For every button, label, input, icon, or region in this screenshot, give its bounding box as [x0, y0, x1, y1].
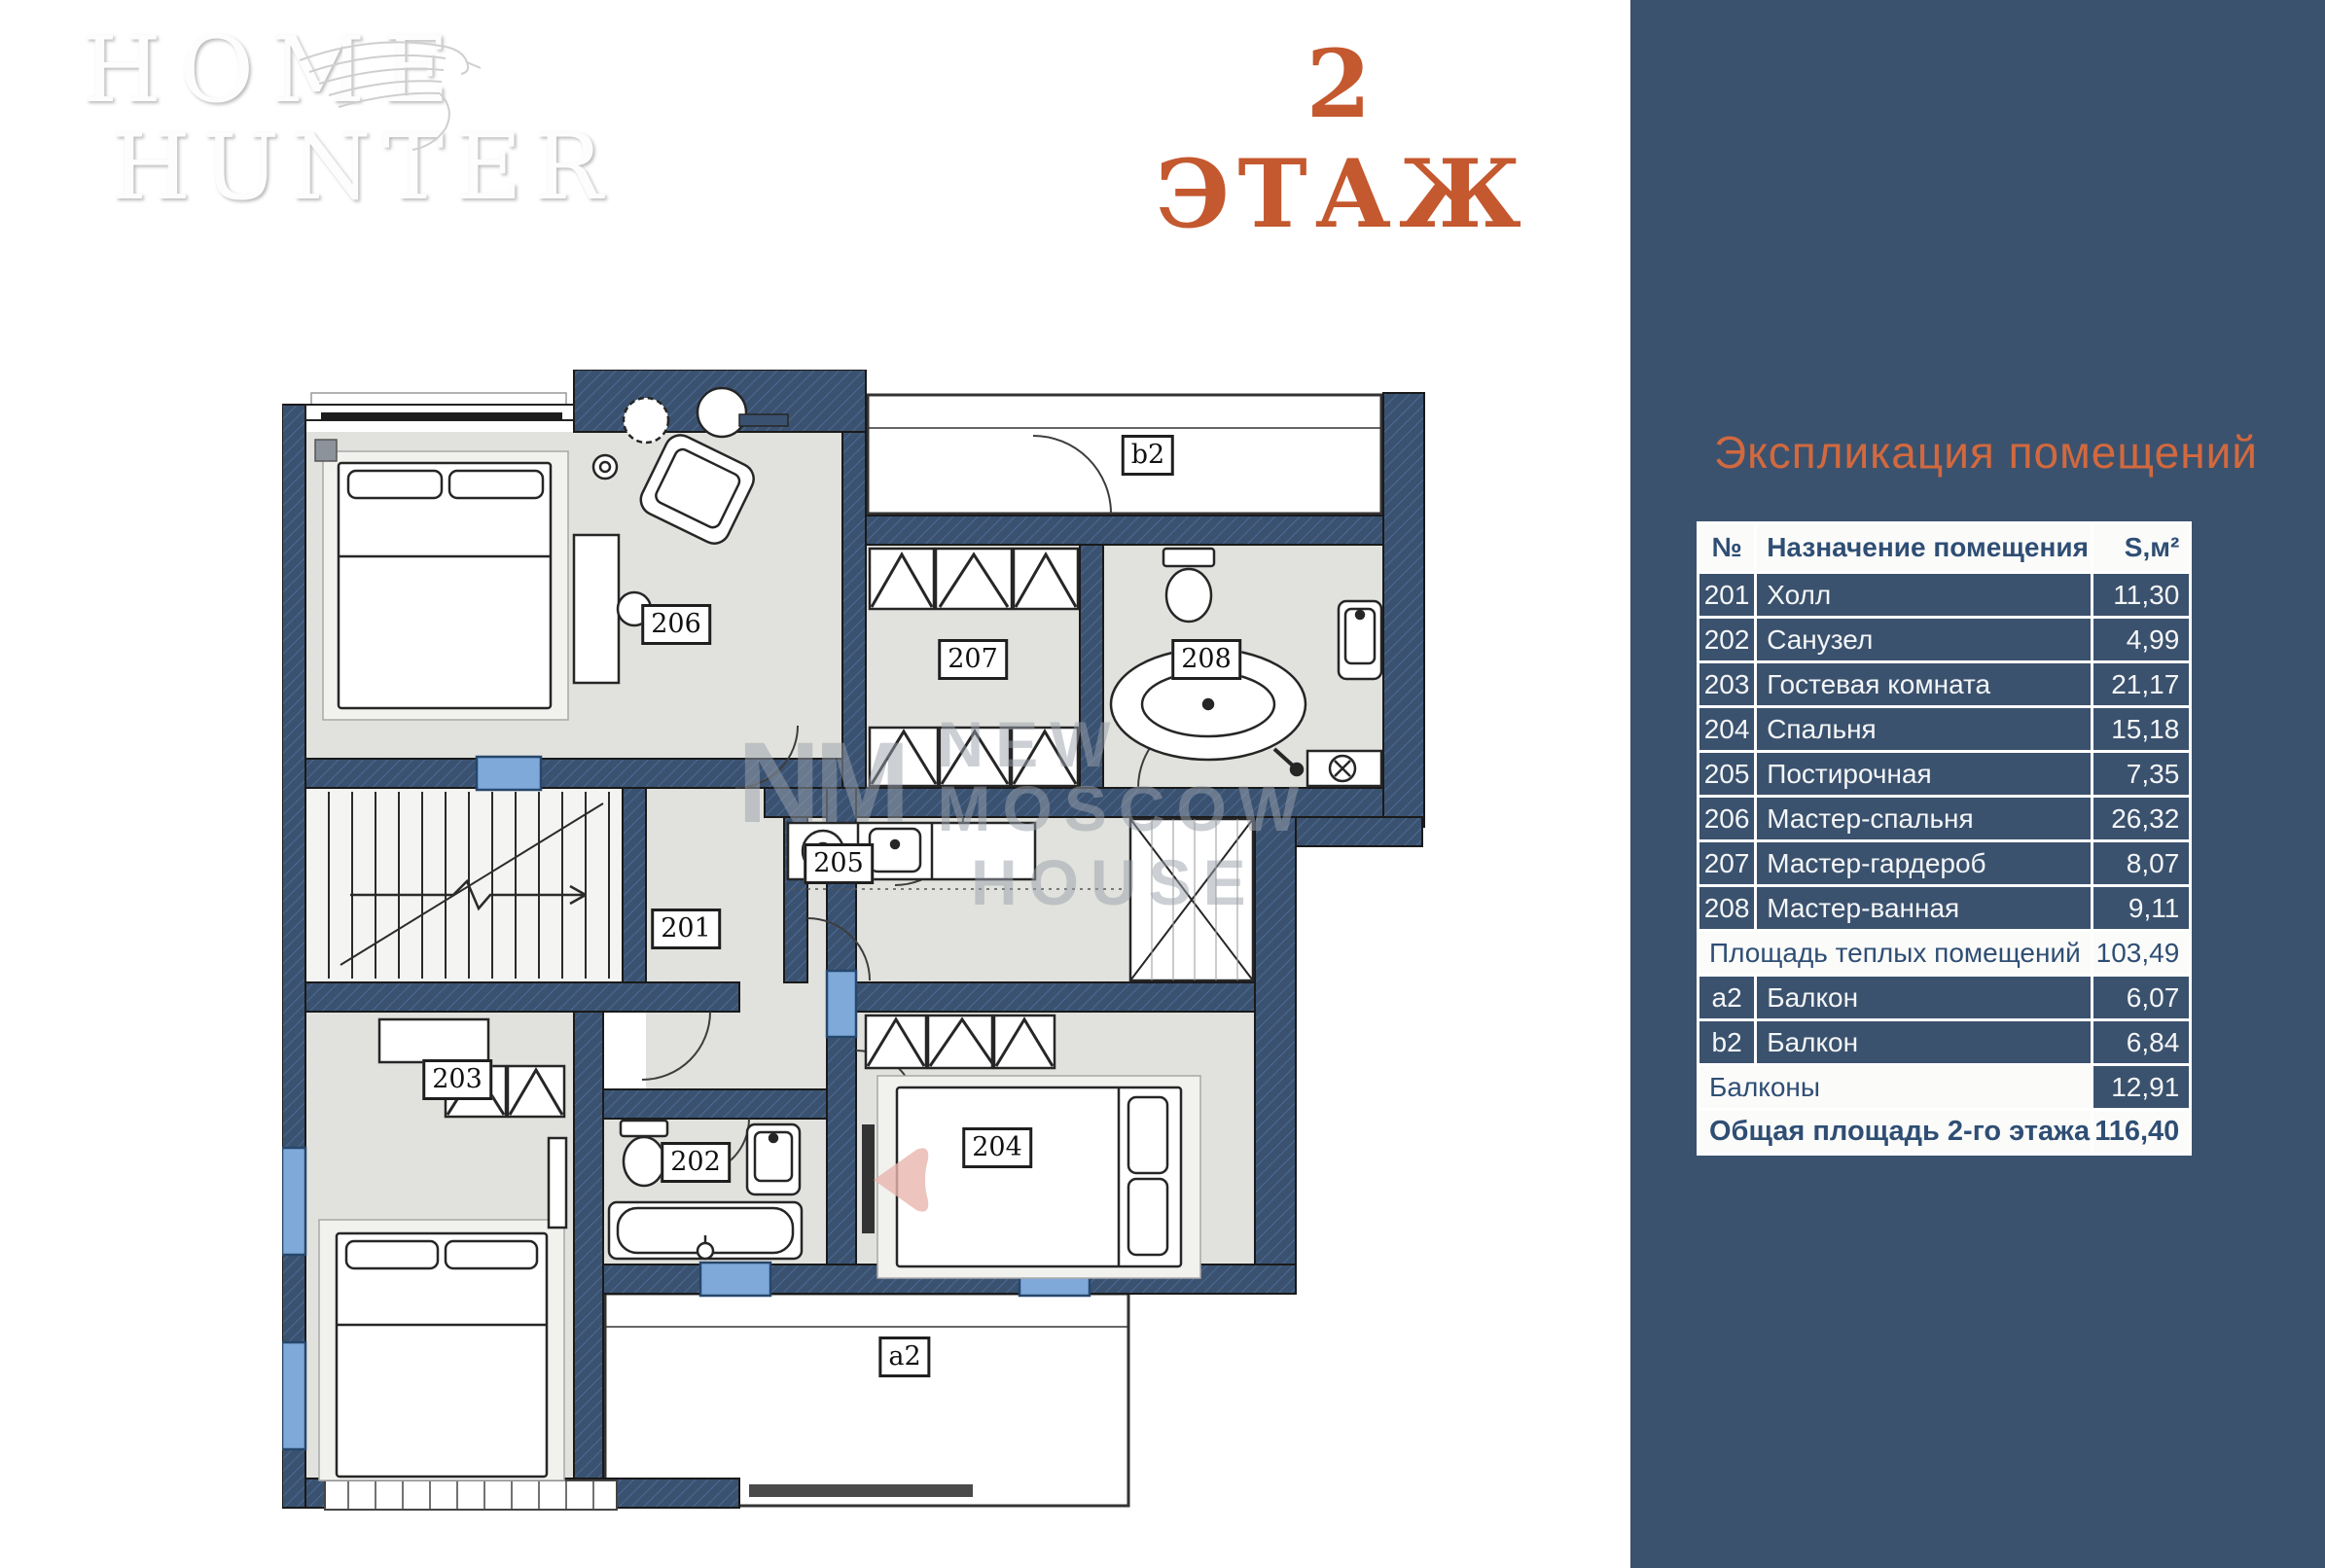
table-cell: 9,11 [2092, 886, 2191, 931]
floor-plan: NM NEW MOSCOW HOUSE 20120220320420520620… [282, 370, 1430, 1517]
room-label-203: 203 [422, 1059, 492, 1100]
table-header-row: № Назначение помещения S,м² [1699, 523, 2191, 573]
table-cell: Мастер-спальня [1756, 797, 2092, 841]
areas-table: № Назначение помещения S,м² 201Холл11,30… [1697, 521, 2192, 1156]
table-cell: Балконы [1699, 1065, 2092, 1110]
table-row-208: 208Мастер-ванная9,11 [1699, 886, 2191, 931]
table-row-207: 207Мастер-гардероб8,07 [1699, 841, 2191, 886]
table-cell: Площадь теплых помещений [1699, 931, 2092, 976]
sidebar-panel: Экспликация помещений № Назначение помещ… [1630, 0, 2325, 1568]
sidebar-title: Экспликация помещений [1714, 426, 2258, 479]
table-cell: Постирочная [1756, 752, 2092, 797]
areas-table-body: 201Холл11,30202Санузел4,99203Гостевая ко… [1699, 573, 2191, 1155]
table-cell: 205 [1699, 752, 1756, 797]
room-label-201: 201 [651, 909, 721, 949]
room-label-207: 207 [938, 639, 1008, 680]
table-row-202: 202Санузел4,99 [1699, 618, 2191, 662]
window-band-top [305, 393, 574, 420]
table-cell: 204 [1699, 707, 1756, 752]
table-cell: Мастер-ванная [1756, 886, 2092, 931]
table-cell: 21,17 [2092, 662, 2191, 707]
page: HOME HUNTER 2 ЭТАЖ [0, 0, 2325, 1568]
table-cell: 6,84 [2092, 1020, 2191, 1065]
watermark-monogram-icon: NM [737, 726, 905, 840]
table-cell: b2 [1699, 1020, 1756, 1065]
table-cell: Общая площадь 2-го этажа [1699, 1110, 2092, 1155]
table-row-206: 206Мастер-спальня26,32 [1699, 797, 2191, 841]
table-cell: Балкон [1756, 1020, 2092, 1065]
table-cell: 203 [1699, 662, 1756, 707]
table-cell: a2 [1699, 976, 1756, 1020]
table-cell: 208 [1699, 886, 1756, 931]
table-cell: Мастер-гардероб [1756, 841, 2092, 886]
table-cell: 15,18 [2092, 707, 2191, 752]
table-row-205: 205Постирочная7,35 [1699, 752, 2191, 797]
table-cell: 207 [1699, 841, 1756, 886]
table-row-mixed: Балконы12,91 [1699, 1065, 2191, 1110]
table-row-summary: Площадь теплых помещений103,49 [1699, 931, 2191, 976]
page-title: 2 ЭТАЖ [1099, 29, 1586, 249]
table-row-203: 203Гостевая комната21,17 [1699, 662, 2191, 707]
table-cell: 4,99 [2092, 618, 2191, 662]
column-header-name: Назначение помещения [1756, 523, 2092, 573]
table-cell: 26,32 [2092, 797, 2191, 841]
column-header-number: № [1699, 523, 1756, 573]
column-header-area: S,м² [2092, 523, 2191, 573]
table-cell: Гостевая комната [1756, 662, 2092, 707]
table-cell: 206 [1699, 797, 1756, 841]
table-row-204: 204Спальня15,18 [1699, 707, 2191, 752]
table-cell: 8,07 [2092, 841, 2191, 886]
room-label-206: 206 [641, 604, 711, 645]
balcony-a2 [605, 1294, 1128, 1506]
room-label-b2: b2 [1122, 435, 1174, 476]
room-label-205: 205 [804, 843, 874, 884]
watermark-line-1: NEW MOSCOW [938, 712, 1430, 840]
table-row-a2: a2Балкон6,07 [1699, 976, 2191, 1020]
table-row-b2: b2Балкон6,84 [1699, 1020, 2191, 1065]
table-cell: 202 [1699, 618, 1756, 662]
table-cell: 7,35 [2092, 752, 2191, 797]
table-cell: 12,91 [2092, 1065, 2191, 1110]
table-cell: 201 [1699, 573, 1756, 618]
watermark-line-2: HOUSE [971, 850, 1430, 914]
eagle-icon [292, 27, 496, 173]
table-row-total: Общая площадь 2-го этажа116,40 [1699, 1110, 2191, 1155]
room-label-202: 202 [661, 1142, 731, 1183]
floor-plan-svg [282, 370, 1430, 1517]
window-band-bottom [325, 1480, 617, 1510]
room-label-204: 204 [962, 1127, 1032, 1168]
table-cell: 116,40 [2092, 1110, 2191, 1155]
room-label-a2: a2 [878, 1336, 930, 1377]
table-cell: 6,07 [2092, 976, 2191, 1020]
table-cell: Балкон [1756, 976, 2092, 1020]
table-cell: Спальня [1756, 707, 2092, 752]
table-cell: Санузел [1756, 618, 2092, 662]
table-cell: 103,49 [2092, 931, 2191, 976]
table-cell: Холл [1756, 573, 2092, 618]
table-row-201: 201Холл11,30 [1699, 573, 2191, 618]
room-label-208: 208 [1171, 639, 1241, 680]
table-cell: 11,30 [2092, 573, 2191, 618]
